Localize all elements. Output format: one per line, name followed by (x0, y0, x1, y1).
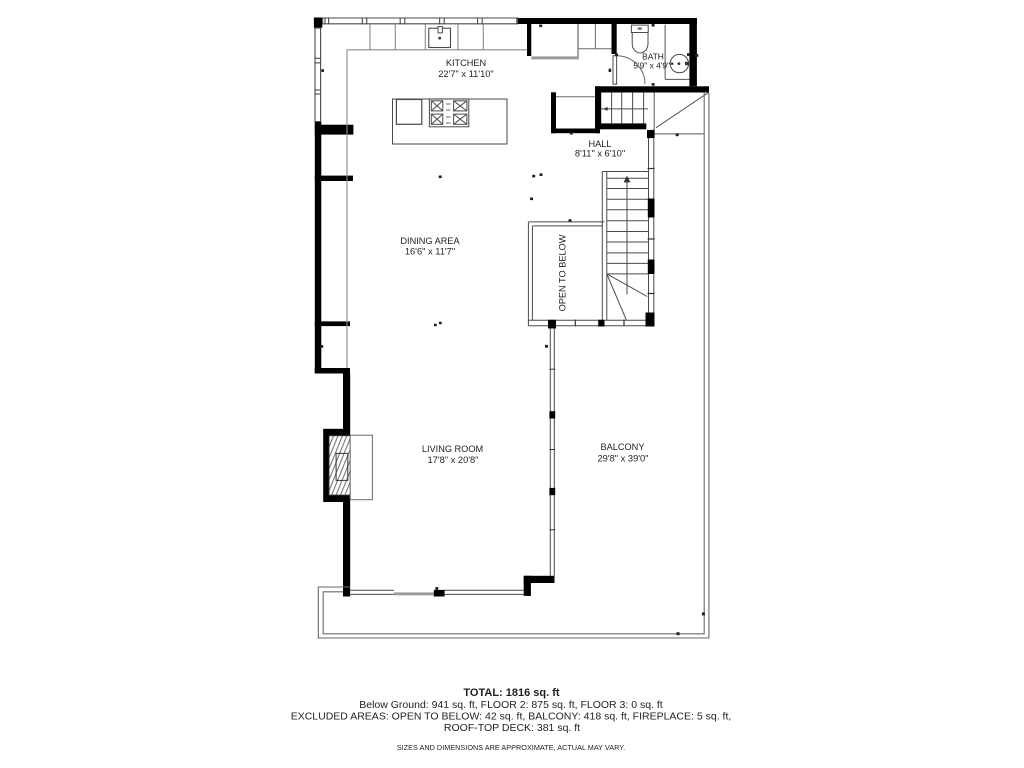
svg-text:HALL: HALL (589, 139, 612, 149)
svg-text:OPEN TO BELOW: OPEN TO BELOW (558, 234, 568, 311)
svg-text:EXCLUDED AREAS: OPEN TO BELOW:: EXCLUDED AREAS: OPEN TO BELOW: 42 sq. ft… (291, 711, 732, 723)
svg-text:DINING AREA: DINING AREA (400, 236, 460, 246)
svg-text:BALCONY: BALCONY (601, 442, 645, 452)
svg-text:LIVING ROOM: LIVING ROOM (422, 444, 483, 454)
svg-text:KITCHEN: KITCHEN (446, 58, 486, 68)
svg-text:Below Ground: 941 sq. ft, FLOO: Below Ground: 941 sq. ft, FLOOR 2: 875 s… (359, 699, 663, 711)
svg-text:5'9" x 4'9": 5'9" x 4'9" (633, 61, 670, 71)
svg-text:8'11" x 6'10": 8'11" x 6'10" (575, 149, 625, 159)
svg-text:29'8" x 39'0": 29'8" x 39'0" (598, 454, 649, 464)
svg-text:SIZES AND DIMENSIONS ARE APPRO: SIZES AND DIMENSIONS ARE APPROXIMATE, AC… (397, 743, 625, 752)
svg-text:16'6" x 11'7": 16'6" x 11'7" (405, 247, 455, 257)
svg-text:ROOF-TOP DECK: 381 sq. ft: ROOF-TOP DECK: 381 sq. ft (444, 722, 580, 734)
svg-text:TOTAL: 1816 sq. ft: TOTAL: 1816 sq. ft (463, 687, 560, 699)
svg-text:22'7" x 11'10": 22'7" x 11'10" (438, 69, 493, 79)
svg-text:17'8" x 20'8": 17'8" x 20'8" (428, 455, 479, 465)
